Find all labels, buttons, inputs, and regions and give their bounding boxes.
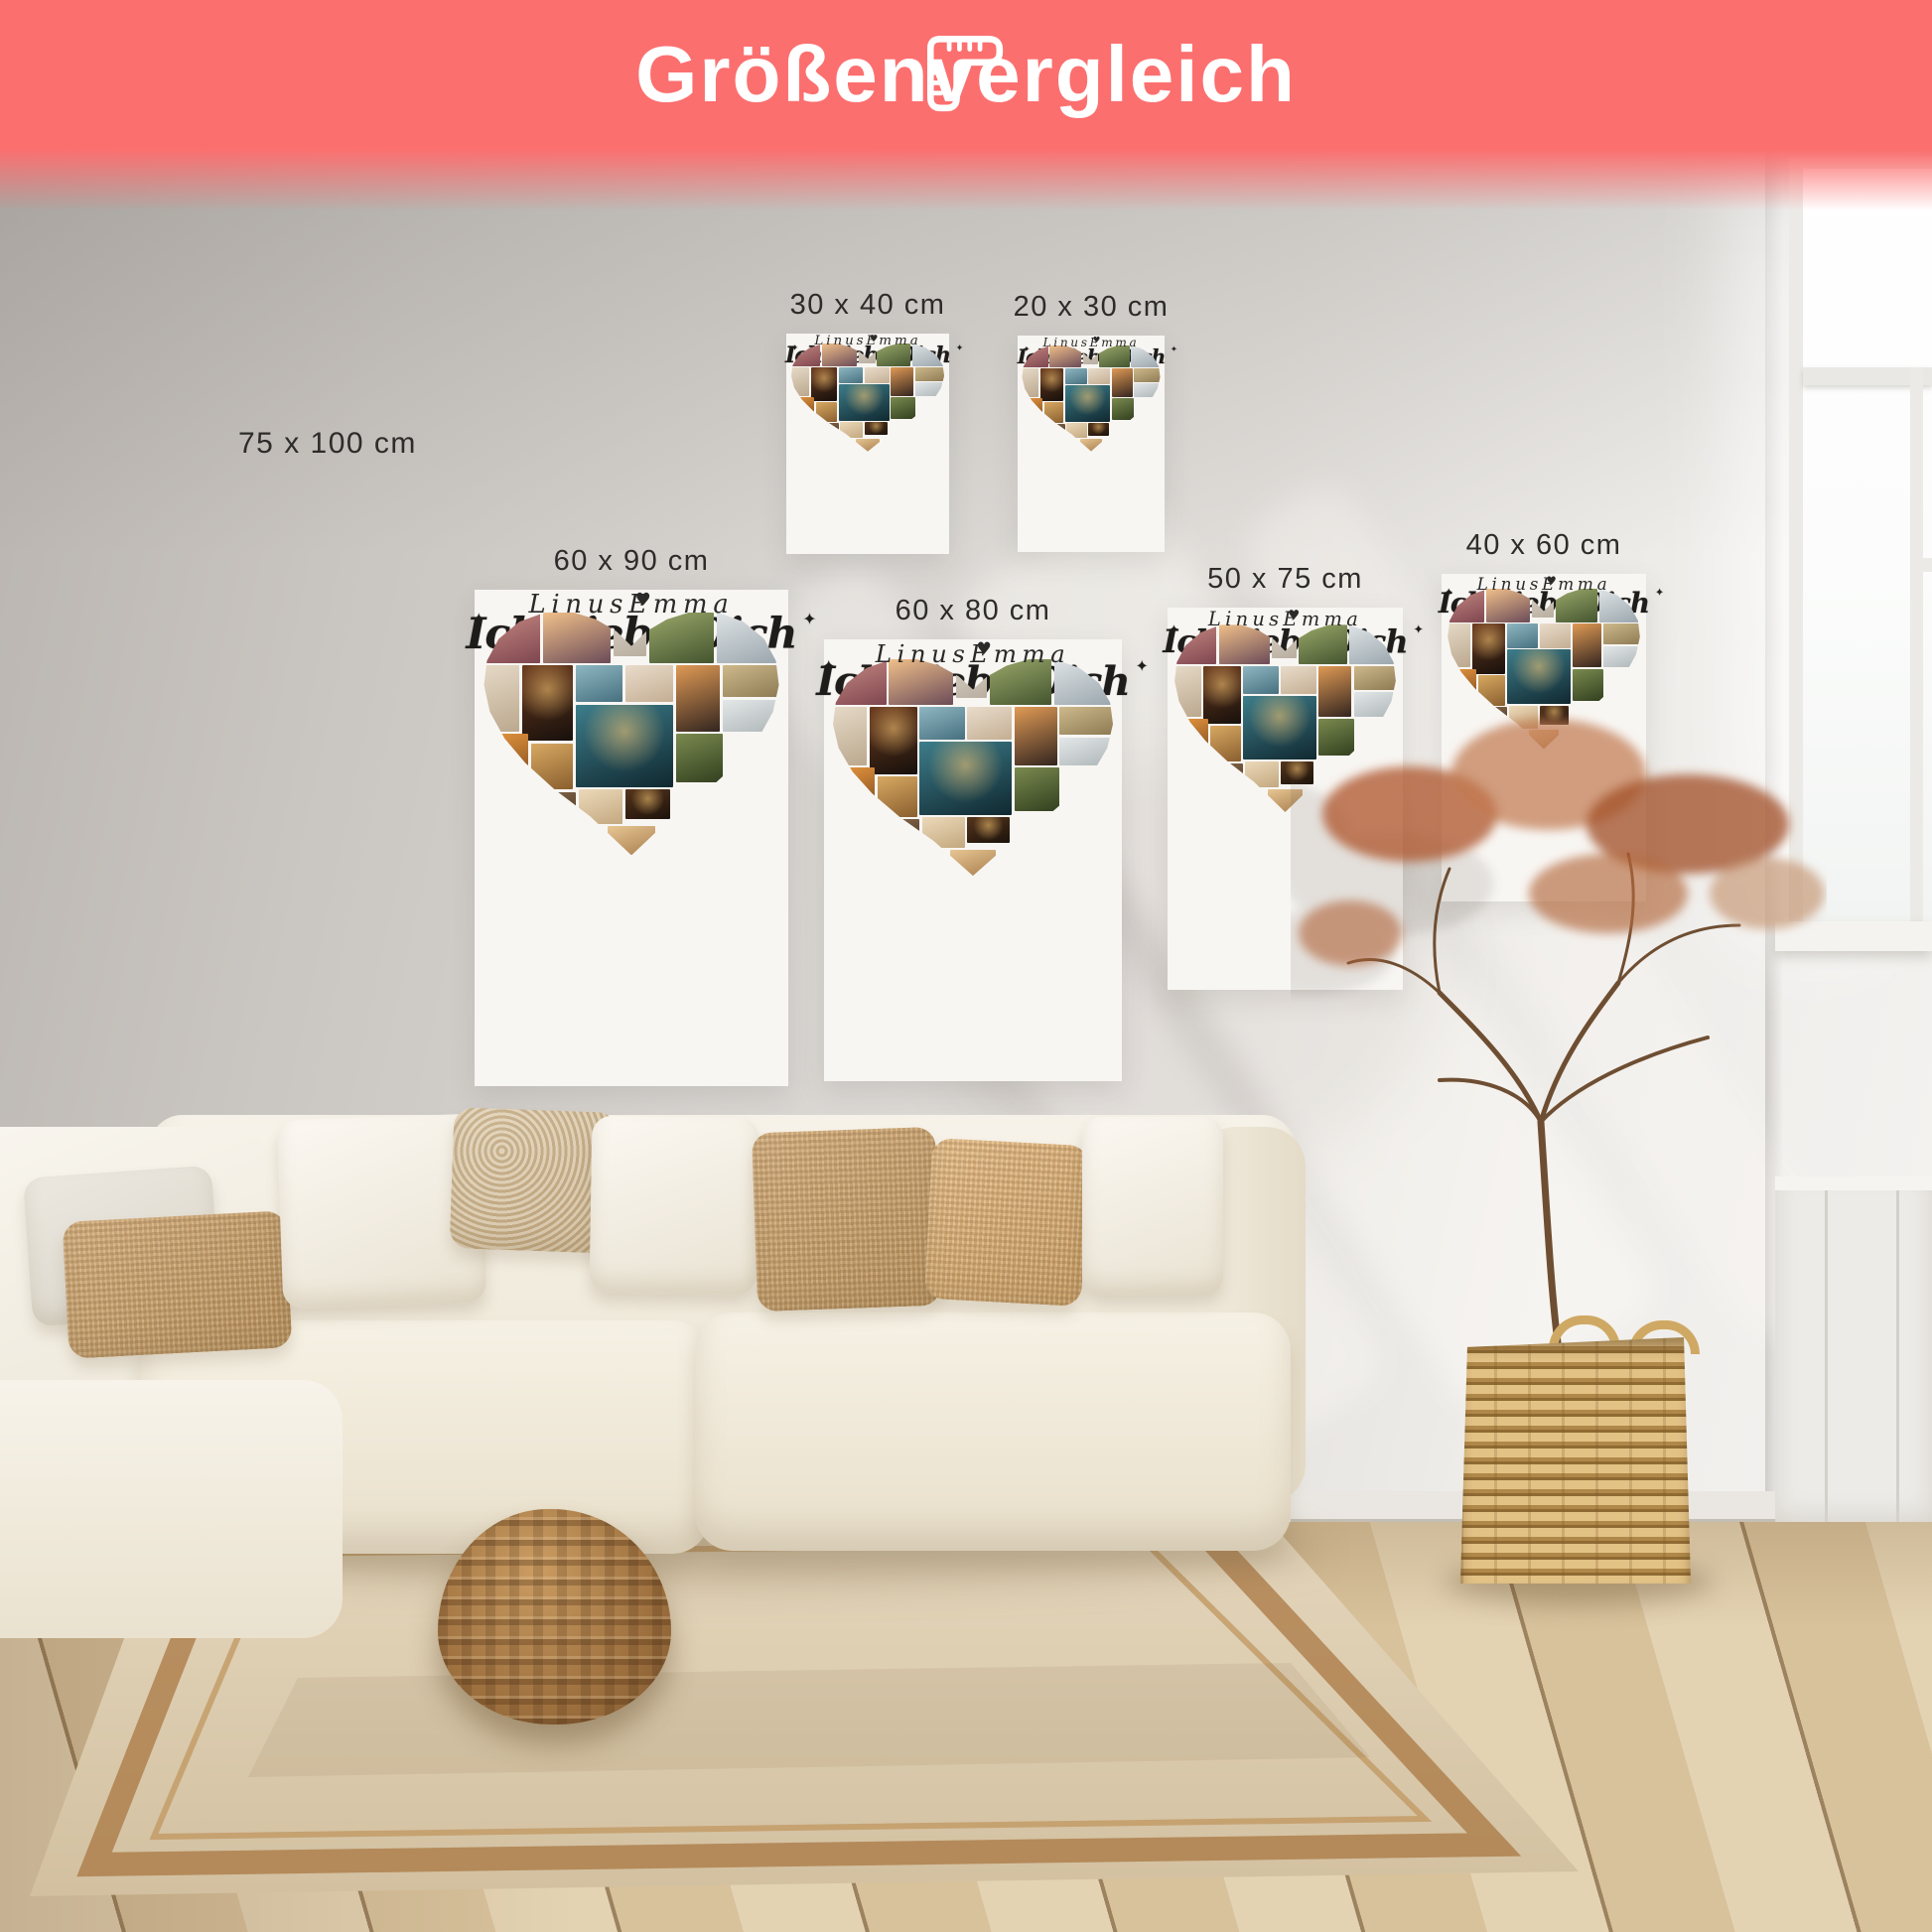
name-first: Linus: [1477, 574, 1543, 594]
photo-campfire: [870, 707, 917, 774]
window-mullion: [1910, 558, 1932, 572]
heart-collage-canvas: ✦Ich Liebe Dich✦Linus♥Emma: [824, 639, 1122, 1081]
name-first: Linus: [529, 590, 629, 620]
poster-size-label: 30 x 40 cm: [790, 289, 946, 322]
photo-dinner-group: [816, 423, 839, 436]
photo-night-party-lights: [839, 384, 890, 421]
photo-palm-beach: [1243, 666, 1279, 694]
star-decoration-icon: ✦: [1163, 622, 1184, 636]
photo-palm-beach: [1507, 623, 1538, 647]
photo-beach-family: [1245, 761, 1278, 787]
photo-beach-sunset-tip: [1080, 439, 1102, 452]
poster-names-script: Linus♥Emma: [1043, 336, 1140, 349]
photo-dinner-group: [1210, 763, 1243, 786]
heart-icon: ♥: [1090, 336, 1104, 345]
photo-beach-sunset-tip: [856, 439, 881, 452]
poster-size-label: 60 x 80 cm: [896, 595, 1051, 627]
heart-photo-collage: [483, 613, 778, 856]
photo-friends-field: [1603, 623, 1640, 644]
photo-campfire: [1203, 666, 1241, 724]
pillow: [924, 1138, 1089, 1307]
photo-sunset-sea: [1112, 368, 1133, 397]
poster-60x80: 60 x 80 cm✦Ich Liebe Dich✦Linus♥Emma: [824, 639, 1122, 1081]
name-first: Linus: [1208, 608, 1283, 630]
window-mullion: [1910, 367, 1923, 933]
poster-size-label: 60 x 90 cm: [554, 545, 710, 578]
star-decoration-icon: ✦: [785, 343, 804, 352]
poster-names-script: Linus♥Emma: [1208, 608, 1362, 630]
star-decoration-icon: ✦: [797, 610, 823, 628]
star-decoration-icon: ✦: [816, 657, 841, 675]
heart-icon: ♥: [628, 590, 657, 611]
poster-names-script: Linus♥Emma: [1477, 574, 1611, 594]
photo-friends-field: [1134, 368, 1160, 382]
photo-sunset-friends: [1174, 719, 1207, 757]
photo-couple-beach: [1134, 383, 1160, 397]
photo-sparkler-night: [1088, 423, 1109, 436]
photo-sunset-sea: [1015, 707, 1056, 765]
page-title: Größenvergleich: [635, 29, 1297, 120]
photo-palm-beach: [919, 707, 964, 740]
cabinet-seam: [1896, 1190, 1899, 1534]
size-comparison-banner: Größenvergleich: [0, 0, 1932, 149]
photo-campfire: [1040, 368, 1064, 401]
photo-garden-bbq: [676, 734, 724, 782]
photo-beach-family: [840, 422, 863, 437]
sofa-seat-cushion: [695, 1312, 1291, 1551]
room-scene: 75 x 100 cm30 x 40 cm✦Ich Liebe Dich✦Lin…: [0, 0, 1932, 1932]
heart-collage-canvas: ✦Ich Liebe Dich✦Linus♥Emma: [475, 590, 788, 1086]
photo-group-hug: [967, 707, 1012, 740]
photo-golden-hour-group: [531, 744, 573, 790]
pillow: [589, 1116, 759, 1296]
heart-collage-canvas: ✦Ich Liebe Dich✦Linus♥Emma: [786, 334, 949, 554]
photo-couple-beach: [1059, 738, 1113, 765]
photo-group-hug: [1540, 623, 1571, 647]
photo-beach-walk: [833, 707, 867, 765]
photo-golden-hour-group: [1210, 726, 1241, 761]
poster-size-label: 50 x 75 cm: [1207, 563, 1363, 596]
photo-night-party-lights: [576, 705, 673, 787]
photo-beach-walk: [483, 665, 519, 731]
photo-beach-sunset-tip: [950, 850, 995, 876]
photo-garden-bbq: [1015, 767, 1059, 811]
photo-night-party-lights: [1065, 385, 1111, 421]
star-decoration-icon: ✦: [1165, 345, 1182, 353]
pillow: [63, 1210, 293, 1359]
star-decoration-icon: ✦: [1408, 622, 1430, 636]
photo-sunset-friends: [483, 734, 528, 782]
photo-campfire: [811, 367, 837, 401]
photo-palm-beach: [839, 367, 864, 383]
photo-beach-family: [1066, 423, 1087, 438]
photo-sparkler-night: [967, 817, 1009, 843]
heart-collage-canvas: ✦Ich Liebe Dich✦Linus♥Emma: [1018, 336, 1165, 552]
poster-size-label: 20 x 30 cm: [1014, 291, 1170, 324]
star-decoration-icon: ✦: [1439, 587, 1459, 599]
photo-beach-walk: [791, 367, 809, 396]
photo-friends-field: [915, 367, 944, 381]
poster-60x90: 60 x 90 cm✦Ich Liebe Dich✦Linus♥Emma: [475, 590, 788, 1086]
photo-sparkler-night: [865, 422, 888, 435]
photo-sunset-friends: [791, 397, 814, 419]
star-decoration-icon: ✦: [1018, 345, 1035, 353]
star-decoration-icon: ✦: [1649, 587, 1670, 599]
photo-dinner-group: [531, 792, 576, 821]
name-first: Linus: [814, 334, 866, 348]
star-decoration-icon: ✦: [950, 343, 969, 352]
photo-golden-hour-group: [816, 402, 838, 423]
poster-names-script: Linus♥Emma: [529, 590, 735, 620]
banner-fade: [0, 149, 1932, 210]
heart-icon: ♥: [867, 334, 882, 345]
photo-sunset-sea: [676, 665, 721, 731]
poster-size-label: 75 x 100 cm: [238, 427, 417, 461]
poster-75x100: 75 x 100 cm: [139, 461, 338, 496]
photo-night-party-lights: [919, 742, 1012, 815]
photo-beach-walk: [1022, 368, 1038, 397]
photo-group-hug: [865, 367, 890, 383]
photo-palm-beach: [576, 665, 623, 702]
poster-20x30: 20 x 30 cm✦Ich Liebe Dich✦Linus♥Emma: [1018, 336, 1165, 552]
photo-beach-family: [922, 817, 964, 848]
photo-campfire: [522, 665, 572, 741]
photo-sparkler-night: [625, 789, 670, 818]
photo-sunset-friends: [1022, 398, 1042, 419]
photo-friends-field: [1059, 707, 1113, 735]
dried-plant: [1291, 655, 1827, 1390]
photo-group-hug: [625, 665, 673, 702]
star-decoration-icon: ✦: [466, 610, 491, 628]
sofa-chaise-seat: [0, 1380, 343, 1638]
photo-beach-walk: [1174, 666, 1201, 717]
photo-golden-hour-group: [878, 776, 916, 817]
heart-photo-collage: [1022, 345, 1160, 452]
photo-couple-beach: [723, 700, 778, 732]
poster-size-label: 40 x 60 cm: [1466, 529, 1622, 562]
photo-sunset-sea: [891, 367, 913, 396]
heart-photo-collage: [833, 659, 1113, 876]
wicker-basket: [1460, 1337, 1691, 1584]
name-first: Linus: [876, 639, 971, 668]
photo-beach-sunset-tip: [608, 826, 655, 855]
poster-names-script: Linus♥Emma: [876, 639, 1070, 668]
photo-friends-field: [723, 665, 778, 697]
heart-icon: ♥: [1283, 608, 1305, 623]
photo-garden-bbq: [1112, 398, 1134, 419]
photo-sunset-friends: [833, 767, 875, 811]
photo-dinner-group: [878, 819, 919, 845]
photo-beach-family: [579, 789, 623, 823]
photo-couple-beach: [915, 382, 944, 396]
pillow: [752, 1127, 941, 1311]
photo-palm-beach: [1065, 368, 1087, 384]
photo-dinner-group: [1044, 424, 1065, 437]
photo-golden-hour-group: [1044, 402, 1063, 422]
heart-icon: ♥: [970, 639, 997, 659]
name-first: Linus: [1043, 336, 1090, 349]
poster-30x40: 30 x 40 cm✦Ich Liebe Dich✦Linus♥Emma: [786, 334, 949, 554]
heart-photo-collage: [791, 344, 944, 452]
star-decoration-icon: ✦: [1130, 657, 1155, 675]
photo-group-hug: [1088, 368, 1110, 384]
heart-icon: ♥: [1542, 574, 1561, 588]
poster-names-script: Linus♥Emma: [814, 334, 920, 348]
photo-garden-bbq: [891, 397, 915, 419]
pillow: [1082, 1117, 1223, 1296]
